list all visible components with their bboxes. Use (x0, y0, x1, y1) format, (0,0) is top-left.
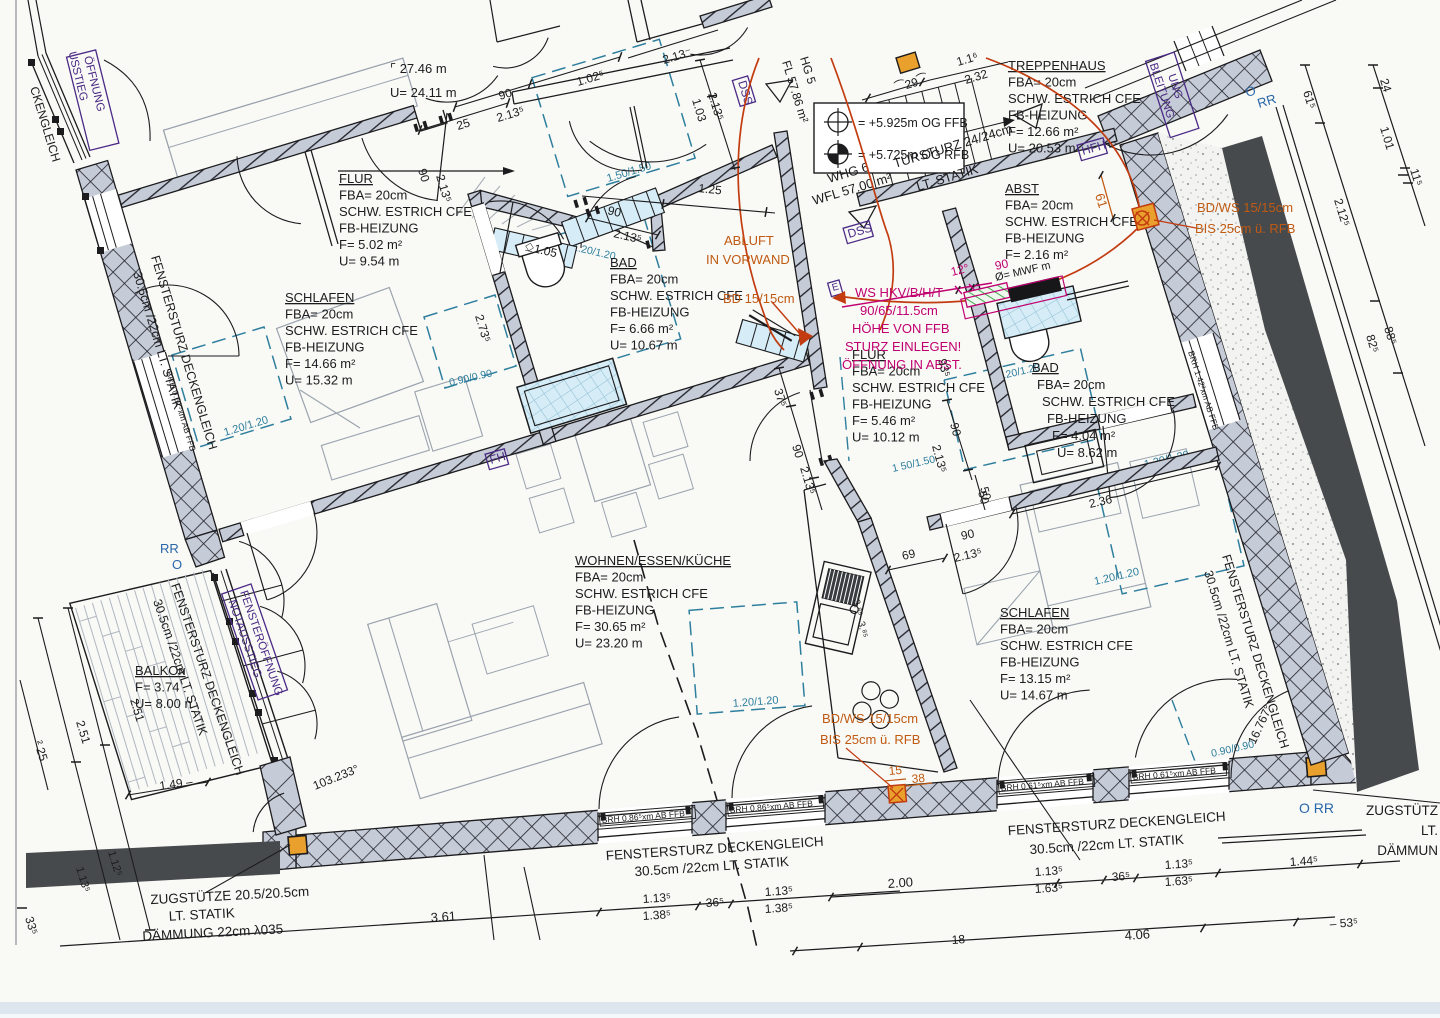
svg-text:RR: RR (160, 541, 179, 556)
svg-text:3.61: 3.61 (430, 908, 456, 925)
svg-text:FBA= 20cm: FBA= 20cm (1008, 75, 1076, 90)
svg-text:U= 14.67 m: U= 14.67 m (1000, 688, 1068, 703)
svg-text:18: 18 (951, 932, 966, 947)
svg-text:FBA= 20cm: FBA= 20cm (610, 272, 678, 287)
svg-text:36⁵: 36⁵ (705, 895, 724, 910)
svg-text:F= 3.74: F= 3.74 (135, 680, 179, 695)
svg-text:F= 5.46 m²: F= 5.46 m² (852, 413, 916, 428)
svg-text:F= 6.66 m²: F= 6.66 m² (610, 321, 674, 336)
svg-text:HÖHE VON FFB: HÖHE VON FFB (852, 321, 950, 336)
svg-text:FB-HEIZUNG: FB-HEIZUNG (339, 221, 418, 236)
svg-text:F= 5.02 m²: F= 5.02 m² (339, 237, 403, 252)
svg-text:U= 15.32 m: U= 15.32 m (285, 373, 353, 388)
svg-text:FBA= 20cm: FBA= 20cm (339, 188, 407, 203)
svg-text:WOHNEN/ESSEN/KÜCHE: WOHNEN/ESSEN/KÜCHE (575, 553, 731, 568)
svg-text:U= 20.53 m: U= 20.53 m (1008, 141, 1076, 156)
svg-text:SCHLAFEN: SCHLAFEN (1000, 605, 1069, 620)
svg-text:LT.: LT. (1421, 823, 1438, 838)
svg-text:1.38⁵: 1.38⁵ (764, 900, 793, 916)
svg-text:1.63⁵: 1.63⁵ (1034, 880, 1063, 896)
svg-text:U= 10.67 m: U= 10.67 m (610, 338, 678, 353)
svg-text:1.13⁵: 1.13⁵ (1034, 863, 1063, 879)
svg-text:FLUR: FLUR (339, 171, 373, 186)
svg-text:FBA= 20cm: FBA= 20cm (1037, 377, 1105, 392)
svg-text:90/65/11.5cm: 90/65/11.5cm (860, 303, 938, 318)
svg-text:SCHW. ESTRICH CFE: SCHW. ESTRICH CFE (1042, 394, 1175, 409)
svg-text:STURZ EINLEGEN!: STURZ EINLEGEN! (845, 339, 961, 354)
svg-text:O: O (172, 557, 182, 572)
svg-text:F= 2.16 m²: F= 2.16 m² (1005, 247, 1069, 262)
svg-text:F= 12.66 m²: F= 12.66 m² (1008, 124, 1079, 139)
svg-text:U= 10.12 m: U= 10.12 m (852, 430, 920, 445)
svg-text:F= 14.66 m²: F= 14.66 m² (285, 356, 356, 371)
svg-text:1.63⁵: 1.63⁵ (1164, 873, 1193, 889)
svg-text:F= 13.15 m²: F= 13.15 m² (1000, 671, 1071, 686)
svg-text:15: 15 (888, 763, 903, 778)
svg-text:BD 15/15cm: BD 15/15cm (723, 291, 795, 306)
svg-text:– 53⁵: – 53⁵ (1329, 915, 1358, 931)
svg-text:FBA= 20cm: FBA= 20cm (575, 570, 643, 585)
svg-text:BAD: BAD (1032, 360, 1059, 375)
svg-text:FBA= 20cm: FBA= 20cm (285, 307, 353, 322)
svg-text:O RR: O RR (1299, 800, 1334, 816)
svg-text:ZUGSTÜTZ: ZUGSTÜTZ (1366, 803, 1438, 818)
svg-text:SCHW. ESTRICH CFE: SCHW. ESTRICH CFE (575, 586, 708, 601)
svg-text:F= 4.04 m²: F= 4.04 m² (1052, 428, 1116, 443)
svg-text:1.13⁵: 1.13⁵ (1164, 856, 1193, 872)
svg-text:FB-HEIZUNG: FB-HEIZUNG (575, 603, 654, 618)
svg-text:1.13⁵: 1.13⁵ (642, 890, 671, 906)
svg-text:BIS 25cm ü. RFB: BIS 25cm ü. RFB (820, 732, 920, 747)
svg-text:FB-HEIZUNG: FB-HEIZUNG (1005, 231, 1084, 246)
svg-text:SCHW. ESTRICH CFE: SCHW. ESTRICH CFE (285, 323, 418, 338)
svg-text:TREPPENHAUS: TREPPENHAUS (1008, 58, 1106, 73)
svg-text:1.25: 1.25 (698, 181, 723, 197)
svg-text:1.13⁵: 1.13⁵ (764, 883, 793, 899)
svg-text:BD/WS 15/15cm: BD/WS 15/15cm (1197, 200, 1293, 215)
svg-text:FB-HEIZUNG: FB-HEIZUNG (852, 397, 931, 412)
svg-text:2.00: 2.00 (887, 874, 913, 891)
svg-text:IN VORWAND: IN VORWAND (706, 252, 790, 267)
svg-text:FB-HEIZUNG: FB-HEIZUNG (285, 340, 364, 355)
svg-text:1.44⁵: 1.44⁵ (1289, 853, 1318, 869)
svg-text:F= 30.65 m²: F= 30.65 m² (575, 619, 646, 634)
svg-text:BAD: BAD (610, 255, 637, 270)
svg-text:SCHW. ESTRICH CFE: SCHW. ESTRICH CFE (852, 380, 985, 395)
svg-text:FB-HEIZUNG: FB-HEIZUNG (1008, 108, 1087, 123)
svg-text:FBA= 20cm: FBA= 20cm (1000, 622, 1068, 637)
svg-text:⌜ 27.46 m: ⌜ 27.46 m (390, 61, 447, 76)
svg-text:ABST: ABST (1005, 181, 1039, 196)
svg-text:36⁵: 36⁵ (1111, 869, 1130, 884)
svg-text:1.38⁵: 1.38⁵ (642, 907, 671, 923)
svg-text:FBA= 20cm: FBA= 20cm (1005, 198, 1073, 213)
svg-text:SCHW. ESTRICH CFE: SCHW. ESTRICH CFE (1005, 214, 1138, 229)
svg-text:U= 23.20 m: U= 23.20 m (575, 636, 643, 651)
svg-text:FB-HEIZUNG: FB-HEIZUNG (1000, 655, 1079, 670)
svg-text:FB-HEIZUNG: FB-HEIZUNG (1047, 411, 1126, 426)
svg-text:U= 9.54 m: U= 9.54 m (339, 254, 399, 269)
svg-text:U= 24.11 m: U= 24.11 m (390, 85, 457, 100)
svg-text:= +5.925m OG FFB: = +5.925m OG FFB (858, 116, 968, 130)
svg-text:SCHW. ESTRICH CFE: SCHW. ESTRICH CFE (339, 204, 472, 219)
svg-text:SCHW. ESTRICH CFE: SCHW. ESTRICH CFE (1008, 91, 1141, 106)
svg-text:U= 8.62 m: U= 8.62 m (1057, 445, 1117, 460)
svg-text:ABLUFT: ABLUFT (724, 233, 774, 248)
svg-text:BD/WS 15/15cm: BD/WS 15/15cm (822, 711, 918, 726)
svg-text:FB-HEIZUNG: FB-HEIZUNG (610, 305, 689, 320)
svg-text:SCHW. ESTRICH CFE: SCHW. ESTRICH CFE (1000, 638, 1133, 653)
svg-text:DÄMMUN: DÄMMUN (1377, 843, 1438, 858)
svg-text:4.06: 4.06 (1124, 926, 1150, 943)
svg-text:BIS 25cm ü. RFB: BIS 25cm ü. RFB (1195, 221, 1295, 236)
svg-text:SCHLAFEN: SCHLAFEN (285, 290, 354, 305)
